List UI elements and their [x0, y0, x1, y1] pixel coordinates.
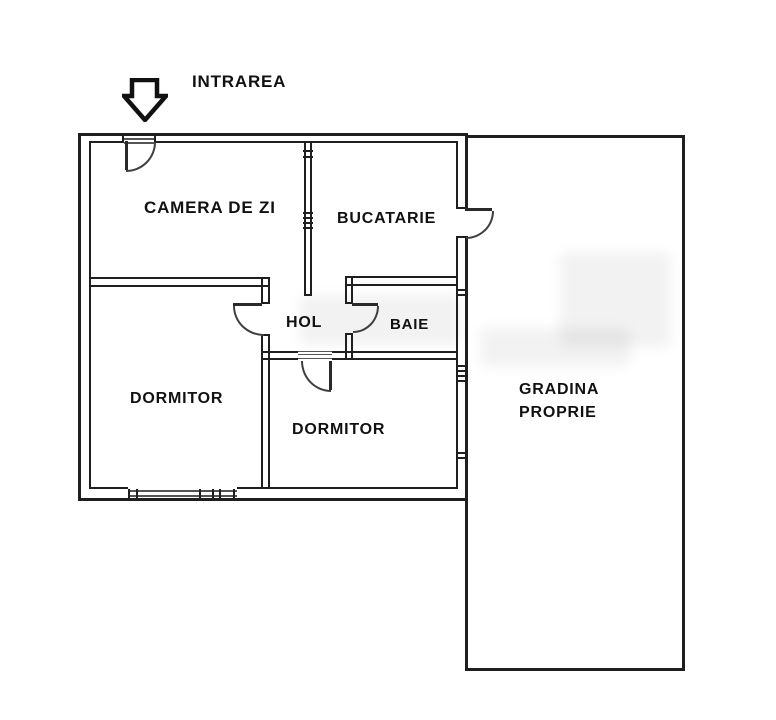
- wall-bedroomleft-left-a: [261, 277, 263, 303]
- garden-border-bottom: [465, 668, 685, 671]
- wall-tick: [303, 217, 313, 219]
- right-wall-window-tick: [456, 452, 468, 454]
- wall-inner-top-a: [89, 141, 122, 143]
- entrance-arrow-icon: [122, 78, 168, 122]
- wall-inner-right-upper: [456, 141, 458, 208]
- wall-living-kitchen-right: [310, 143, 312, 296]
- hall-label: HOL: [286, 314, 322, 332]
- right-wall-window-tick: [456, 380, 468, 382]
- right-wall-window-tick: [456, 457, 468, 459]
- living-room-label: CAMERA DE ZI: [144, 198, 276, 218]
- wall-tick: [303, 150, 313, 152]
- wall-hall-bath-right-a: [351, 276, 353, 303]
- bottom-window-divider: [199, 489, 201, 499]
- wall-outer-right-upper: [465, 133, 468, 208]
- garden-label-line2: PROPRIE: [519, 401, 599, 424]
- wall-hall-bottom-bot-a: [262, 358, 298, 360]
- wall-inner-left: [89, 141, 91, 489]
- wall-kitchen-bath-top: [345, 276, 458, 278]
- wall-hall-bottom-top-a: [262, 351, 298, 353]
- wall-living-bedroom-bottom: [89, 285, 270, 287]
- entrance-sill-top: [124, 138, 154, 140]
- bottom-window-divider: [136, 489, 138, 499]
- bedroombottom-door-sill: [298, 354, 332, 355]
- bedroom-bottom-label: DORMITOR: [292, 421, 385, 439]
- right-wall-window-tick: [456, 375, 468, 377]
- bedroom-left-label: DORMITOR: [130, 390, 223, 408]
- wall-hall-bath-left-a: [345, 276, 347, 303]
- bath-door-jamb-bottom: [345, 333, 353, 335]
- bedroombottom-door-sill: [298, 358, 332, 359]
- garden-border-left: [465, 498, 468, 671]
- wall-living-kitchen-left: [304, 143, 306, 296]
- bottom-window-divider: [219, 489, 221, 499]
- wall-tick: [303, 212, 313, 214]
- right-wall-window-tick: [456, 370, 468, 372]
- garden-border-top: [468, 135, 685, 138]
- wall-tick: [303, 222, 313, 224]
- wall-inner-bottom-b: [237, 487, 458, 489]
- wall-living-bedroom-top: [89, 277, 270, 279]
- kitchen-label: BUCATARIE: [337, 210, 436, 228]
- floor-plan: INTRAREA CAMERA DE ZI BUCATARIE HOL BAIE…: [0, 0, 776, 720]
- right-wall-vent-tick: [456, 289, 468, 291]
- wall-hall-bottom-bot-b: [332, 358, 458, 360]
- wall-hall-bath-right-b: [351, 334, 353, 359]
- entrance-label: INTRAREA: [192, 72, 286, 92]
- right-wall-vent-tick: [456, 294, 468, 296]
- bedroomleft-door-jamb-top: [261, 302, 270, 304]
- wall-inner-top-b: [156, 141, 458, 143]
- bathroom-label: BAIE: [390, 316, 429, 333]
- garden-label: GRADINA PROPRIE: [519, 378, 599, 424]
- wall-outer-top: [78, 133, 468, 136]
- wall-kitchen-bath-bottom: [345, 284, 458, 286]
- garden-border-right: [682, 135, 685, 671]
- wall-hall-bottom-top-b: [332, 351, 458, 353]
- wall-living-kitchen-cap: [304, 294, 312, 296]
- bottom-window-divider: [128, 489, 130, 499]
- bottom-window-divider: [212, 489, 214, 499]
- wall-bedroomleft-right-a: [268, 277, 270, 303]
- bedroombottom-door-sill: [298, 351, 332, 352]
- wall-hall-bath-left-b: [345, 334, 347, 359]
- watermark-smudge: [300, 295, 460, 345]
- garden-label-line1: GRADINA: [519, 378, 599, 401]
- wall-tick: [303, 227, 313, 229]
- right-wall-window-tick: [456, 365, 468, 367]
- wall-outer-left: [78, 133, 81, 501]
- bottom-window-divider: [233, 489, 235, 499]
- wall-tick: [303, 156, 313, 158]
- watermark-smudge: [480, 328, 630, 366]
- wall-inner-bottom-a: [89, 487, 128, 489]
